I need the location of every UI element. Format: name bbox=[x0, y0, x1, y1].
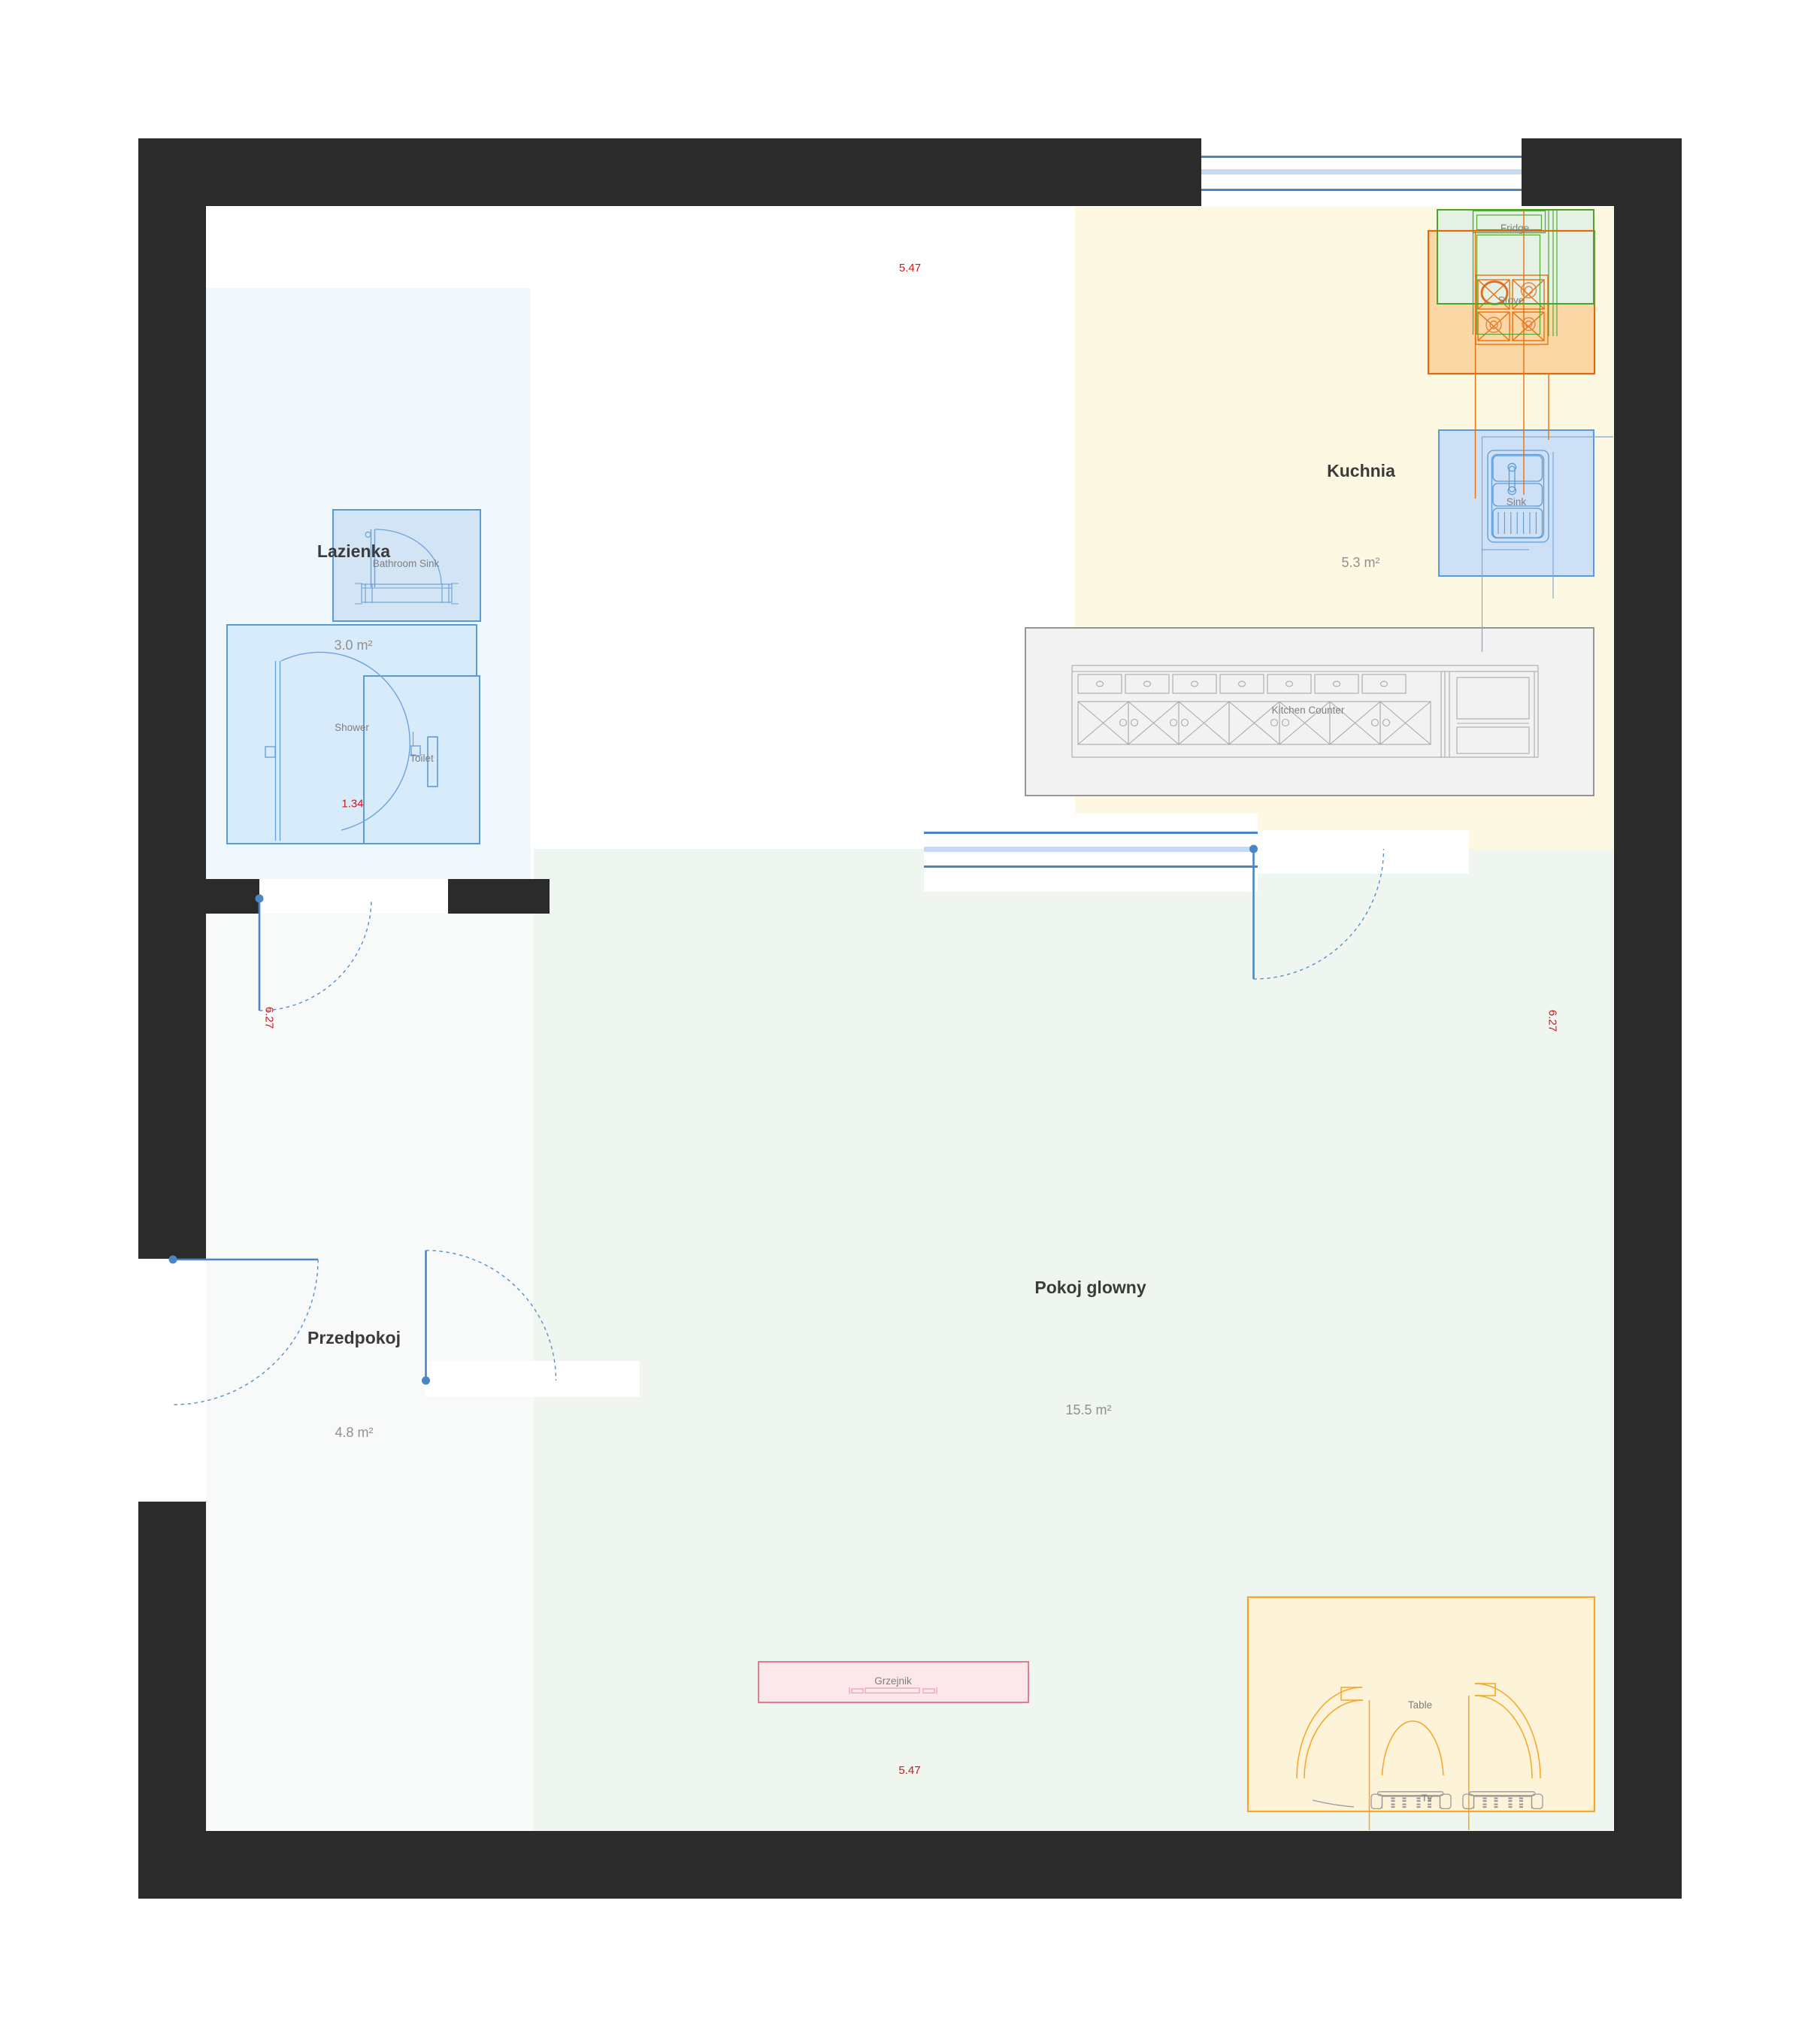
svg-text:5.3 m²: 5.3 m² bbox=[1341, 555, 1379, 570]
svg-text:Table: Table bbox=[1408, 1699, 1432, 1711]
svg-text:15.5 m²: 15.5 m² bbox=[1065, 1402, 1111, 1417]
svg-text:Przedpokoj: Przedpokoj bbox=[307, 1328, 401, 1347]
svg-text:3.0 m²: 3.0 m² bbox=[334, 638, 372, 653]
svg-text:Stove: Stove bbox=[1498, 295, 1525, 306]
svg-text:Toilet: Toilet bbox=[410, 753, 434, 764]
svg-text:Sink: Sink bbox=[1507, 496, 1527, 508]
svg-text:5.47: 5.47 bbox=[898, 1764, 920, 1777]
svg-text:1.34: 1.34 bbox=[341, 798, 363, 811]
svg-text:Pokoj glowny: Pokoj glowny bbox=[1034, 1278, 1146, 1297]
svg-text:5.47: 5.47 bbox=[899, 262, 921, 274]
svg-text:Tv: Tv bbox=[1422, 1793, 1433, 1804]
svg-text:Fridge: Fridge bbox=[1501, 223, 1529, 234]
svg-text:Kitchen Counter: Kitchen Counter bbox=[1272, 705, 1345, 716]
svg-text:Grzejnik: Grzejnik bbox=[874, 1675, 912, 1687]
svg-text:4.8 m²: 4.8 m² bbox=[335, 1425, 373, 1440]
svg-text:Shower: Shower bbox=[335, 722, 369, 733]
svg-text:Kuchnia: Kuchnia bbox=[1327, 461, 1395, 480]
svg-text:6.27: 6.27 bbox=[1546, 1010, 1559, 1032]
svg-text:6.27: 6.27 bbox=[263, 1007, 276, 1029]
svg-text:Lazienka: Lazienka bbox=[317, 541, 390, 561]
